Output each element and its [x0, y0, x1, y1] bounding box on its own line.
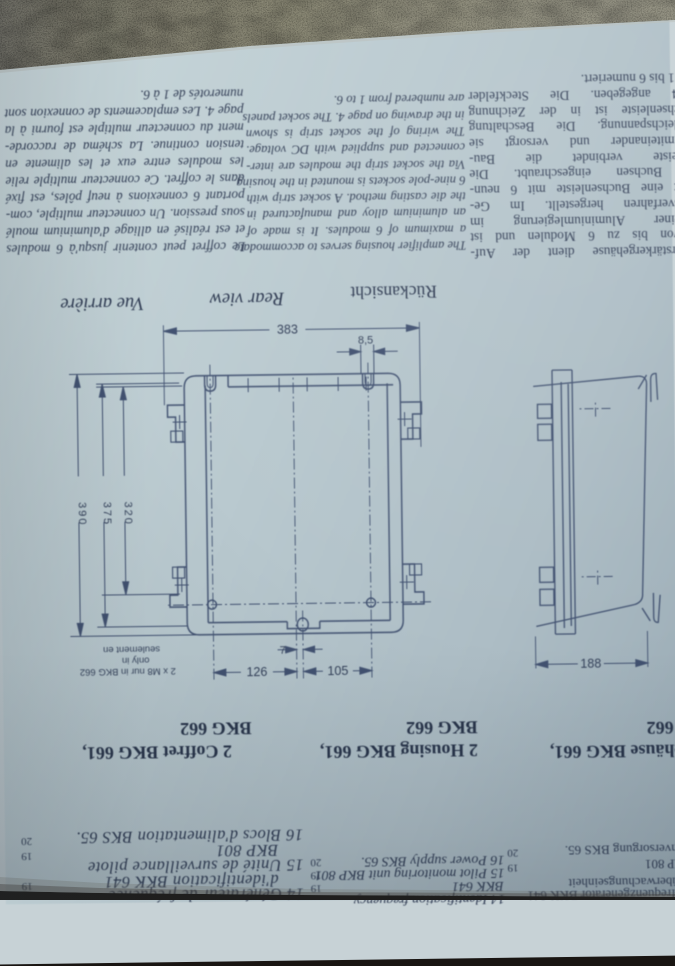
svg-text:only in: only in — [122, 654, 150, 665]
svg-text:126: 126 — [246, 665, 267, 679]
svg-text:320: 320 — [122, 501, 134, 526]
svg-text:seulement en: seulement en — [103, 643, 160, 655]
svg-text:390: 390 — [76, 502, 88, 527]
svg-text:2 x M8 nur in BKG 662: 2 x M8 nur in BKG 662 — [80, 665, 176, 677]
svg-text:105: 105 — [327, 664, 348, 678]
svg-text:383: 383 — [277, 323, 298, 337]
svg-text:188: 188 — [580, 657, 601, 671]
svg-text:375: 375 — [101, 502, 113, 527]
svg-text:7: 7 — [279, 645, 285, 657]
svg-text:8,5: 8,5 — [358, 335, 373, 347]
